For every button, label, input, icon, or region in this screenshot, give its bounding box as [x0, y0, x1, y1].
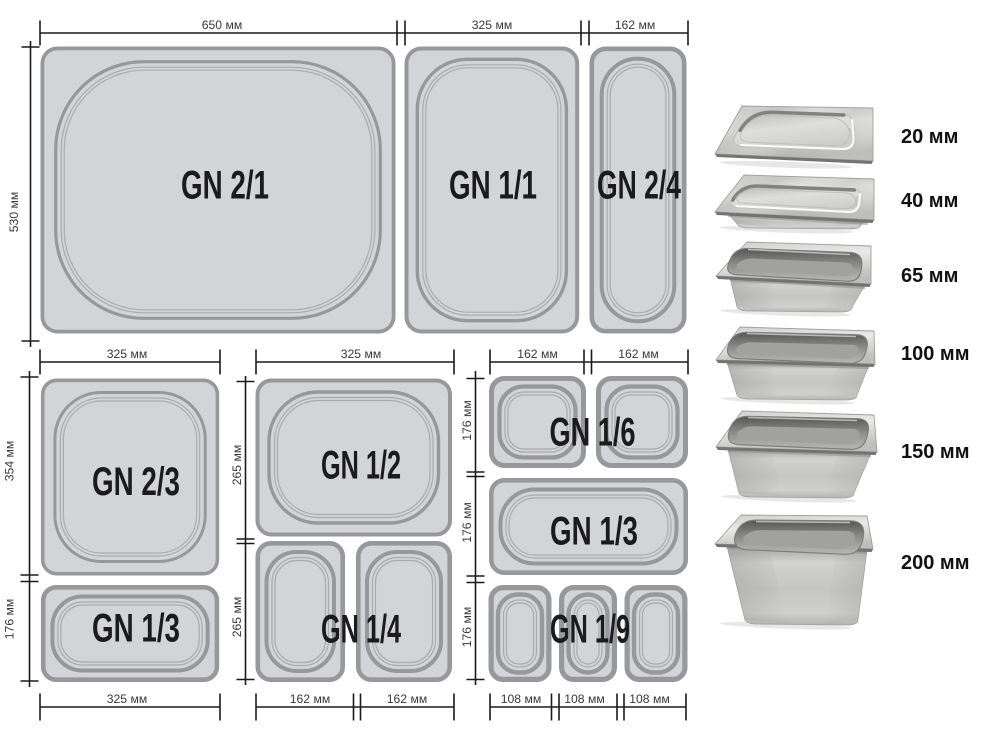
svg-text:325 мм: 325 мм	[341, 347, 381, 361]
svg-text:176 мм: 176 мм	[460, 400, 474, 440]
svg-text:108 мм: 108 мм	[501, 692, 541, 706]
svg-text:GN 1/2: GN 1/2	[321, 443, 401, 487]
svg-text:530 мм: 530 мм	[7, 192, 21, 232]
svg-text:108 мм: 108 мм	[629, 692, 669, 706]
svg-text:354 мм: 354 мм	[3, 441, 17, 481]
svg-text:GN 2/1: GN 2/1	[181, 163, 269, 207]
svg-text:325 мм: 325 мм	[107, 347, 147, 361]
svg-text:GN 1/3: GN 1/3	[92, 606, 180, 650]
svg-text:176 мм: 176 мм	[3, 599, 17, 639]
svg-text:176 мм: 176 мм	[460, 607, 474, 647]
svg-text:GN 2/4: GN 2/4	[597, 163, 681, 207]
svg-text:650 мм: 650 мм	[202, 18, 242, 32]
svg-text:162 мм: 162 мм	[290, 692, 330, 706]
svg-text:40 мм: 40 мм	[901, 190, 958, 212]
svg-text:325 мм: 325 мм	[472, 18, 512, 32]
svg-text:65 мм: 65 мм	[901, 265, 958, 287]
svg-text:265 мм: 265 мм	[230, 445, 244, 485]
svg-text:GN 1/6: GN 1/6	[550, 410, 636, 454]
svg-text:GN 1/9: GN 1/9	[550, 607, 630, 651]
svg-text:GN 1/1: GN 1/1	[449, 163, 537, 207]
svg-text:GN 1/4: GN 1/4	[321, 607, 401, 651]
svg-text:20 мм: 20 мм	[901, 126, 958, 148]
svg-text:325 мм: 325 мм	[107, 692, 147, 706]
svg-text:GN 1/3: GN 1/3	[550, 509, 638, 553]
svg-text:100 мм: 100 мм	[901, 343, 970, 365]
svg-text:150 мм: 150 мм	[901, 441, 970, 463]
svg-text:176 мм: 176 мм	[460, 502, 474, 542]
svg-text:200 мм: 200 мм	[901, 552, 970, 574]
svg-text:GN 2/3: GN 2/3	[92, 460, 180, 504]
svg-text:162 мм: 162 мм	[615, 18, 655, 32]
svg-text:162 мм: 162 мм	[517, 347, 557, 361]
svg-text:108 мм: 108 мм	[564, 692, 604, 706]
svg-text:162 мм: 162 мм	[618, 347, 658, 361]
svg-text:265 мм: 265 мм	[230, 597, 244, 637]
svg-text:162 мм: 162 мм	[387, 692, 427, 706]
